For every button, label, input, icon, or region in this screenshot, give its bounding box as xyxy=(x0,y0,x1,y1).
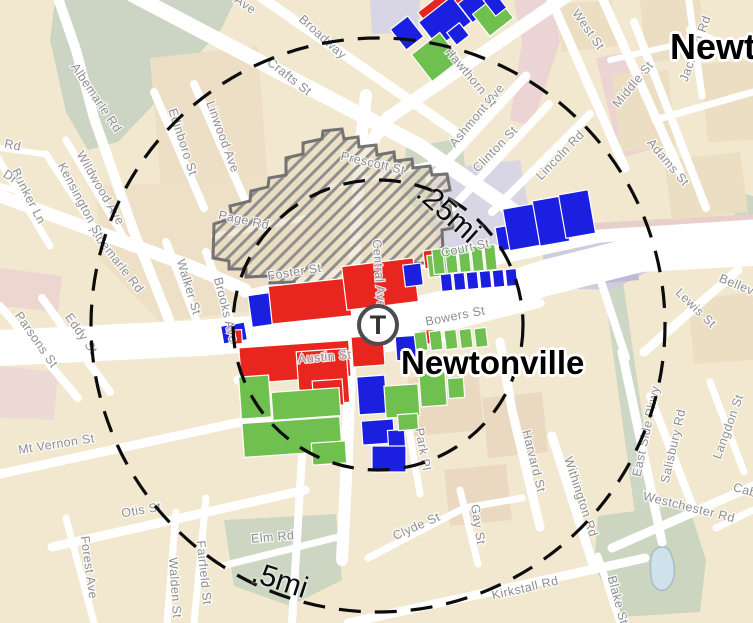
parcel-b[interactable] xyxy=(440,273,453,291)
parcel-g[interactable] xyxy=(271,388,341,421)
parcel-b[interactable] xyxy=(479,270,492,288)
map-canvas[interactable]: Albemarle RdAlbemarle RdWildwood AveKens… xyxy=(0,0,753,623)
place-label-newtonville: Newtonville xyxy=(401,344,584,382)
pond xyxy=(650,547,674,590)
parcel-g[interactable] xyxy=(311,441,346,465)
place-label-newton: Newt xyxy=(670,26,753,68)
parcel-b[interactable] xyxy=(492,269,505,287)
parcel-b[interactable] xyxy=(387,429,405,447)
parcel-b[interactable] xyxy=(403,263,424,287)
parcel-b[interactable] xyxy=(453,272,466,290)
parcel-b[interactable] xyxy=(466,271,479,289)
parcel-r[interactable] xyxy=(268,278,352,324)
t-station-glyph: T xyxy=(370,312,387,339)
parcel-b[interactable] xyxy=(357,375,388,415)
landuse-patch xyxy=(0,366,58,420)
t-station-icon[interactable]: T xyxy=(357,304,399,346)
